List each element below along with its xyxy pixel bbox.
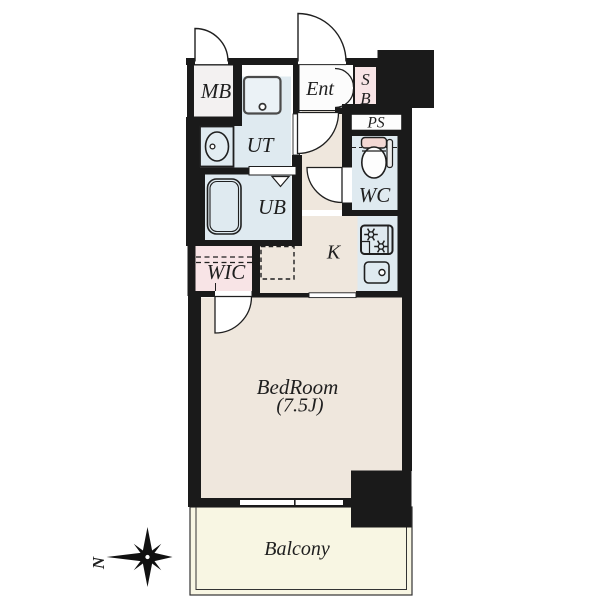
svg-text:B: B bbox=[360, 89, 371, 108]
svg-text:N: N bbox=[89, 556, 108, 570]
svg-text:PS: PS bbox=[366, 115, 384, 132]
svg-text:(7.5J): (7.5J) bbox=[276, 395, 324, 417]
svg-text:WIC: WIC bbox=[207, 260, 246, 284]
svg-text:UB: UB bbox=[258, 195, 286, 219]
svg-text:UT: UT bbox=[247, 133, 275, 157]
svg-text:K: K bbox=[326, 242, 342, 264]
svg-text:S: S bbox=[361, 70, 370, 89]
svg-text:WC: WC bbox=[359, 183, 391, 207]
svg-text:Ent: Ent bbox=[305, 78, 334, 100]
svg-text:MB: MB bbox=[200, 79, 231, 103]
svg-text:Balcony: Balcony bbox=[264, 538, 330, 560]
